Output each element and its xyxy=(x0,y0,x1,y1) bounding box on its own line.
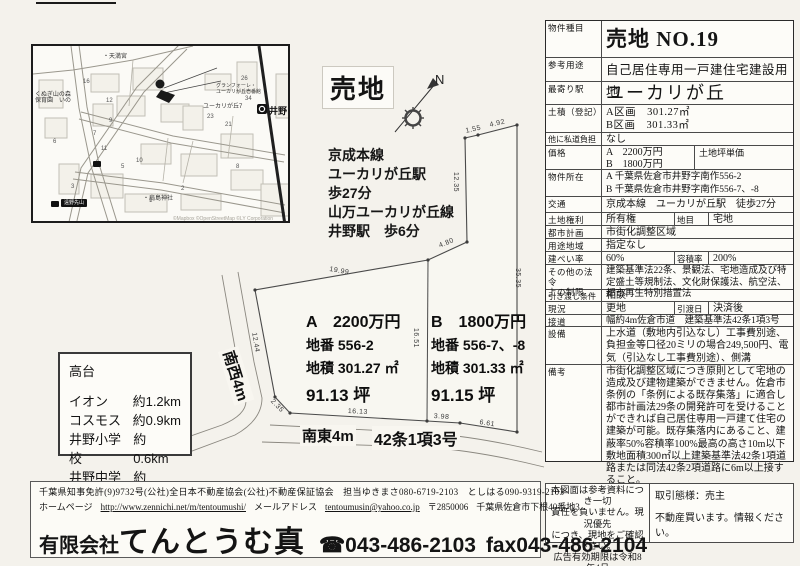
field-value: 更地 xyxy=(602,302,675,314)
map-label-shrine: ・扇島神社 xyxy=(143,196,173,202)
field-label: 交通 xyxy=(546,197,602,212)
field-label: 物件種目 xyxy=(546,21,602,57)
field-label: 地目 xyxy=(675,213,709,225)
field-value: 相談 xyxy=(602,290,793,301)
field-value: 建築基準法22条、景観法、宅地造成及び特定盛土等規制法、文化財保護法、航空法、都… xyxy=(602,265,793,289)
field-value: A 千葉県佐倉市井野字南作556-2 B 千葉県佐倉市井野字南作556-7、-8 xyxy=(602,170,793,196)
field-label: 設備 xyxy=(546,327,602,364)
field-label: 他に私道負担 xyxy=(546,133,602,145)
table-row: 設備 上水道（敷地内引込なし）工事費別途、負担金等口径20ミリの場合249,50… xyxy=(546,326,793,364)
map-label-granforet: グランフォーレ・ ユーカリが丘壱番館 xyxy=(216,84,261,95)
field-label: 価格 xyxy=(546,146,602,169)
map-label-tenmangu: ・天満宮 xyxy=(103,54,127,60)
table-row: 引き渡し条件 相談 xyxy=(546,289,793,301)
table-row: 最寄り駅 ユーカリが丘 xyxy=(546,81,793,104)
field-label: 備考 xyxy=(546,365,602,461)
table-row: 他に私道負担 なし xyxy=(546,132,793,145)
road-article-label: 42条1項3号 xyxy=(372,426,460,450)
map-block-number: 9 xyxy=(109,118,112,124)
map-block-number: 10 xyxy=(136,158,143,164)
field-label: 最寄り駅 xyxy=(546,82,602,104)
field-value: 指定なし xyxy=(602,239,793,251)
company-prefix: 有限会社 xyxy=(39,529,119,558)
table-row: 物件所在 A 千葉県佐倉市井野字南作556-2 B 千葉県佐倉市井野字南作556… xyxy=(546,169,793,196)
landmark-item: 井野小学校 約0.6km xyxy=(69,430,181,468)
office-address: 千葉県佐倉市下根40番地3 xyxy=(476,502,580,512)
parcel-b-info: B 1800万円 地番 556-7、-8 地積 301.33 ㎡ 91.15 坪 xyxy=(431,308,526,406)
dimension-label: 35.35 xyxy=(514,268,521,288)
company-name: てんとうむ真 xyxy=(119,517,305,561)
transaction-type: 取引態様：売主 xyxy=(655,487,788,502)
parcel-a-area: 地積 301.27 ㎡ xyxy=(306,358,401,378)
bus-stop-label: 遠野先山 xyxy=(61,199,87,207)
homepage-url: http://www.zennichi.net/m/tentoumushi/ xyxy=(101,502,246,512)
transaction-info: 取引態様：売主 不動産買います。情報ください。 xyxy=(650,484,793,542)
field-value: 上水道（敷地内引込なし）工事費別途、負担金等口径20ミリの場合249,500円、… xyxy=(602,327,793,364)
company-box: 千葉県知事免許(9)9732号(公社)全日本不動産協会(公社)不動産保証協会 担… xyxy=(30,481,541,558)
field-value: A区画 301.27㎡ B区画 301.33㎡ xyxy=(602,105,793,132)
landmark-box: 高台 イオン 約1.2km コスモス 約0.9km 井野小学校 約0.6km 井… xyxy=(58,352,192,456)
map-block-number: 1 xyxy=(149,198,152,204)
field-label: 容積率 xyxy=(675,252,709,264)
landmark-distance: 約0.6km xyxy=(133,430,181,468)
road-label-southeast: 南東4m xyxy=(300,425,356,446)
field-label: 参考用途 xyxy=(546,58,602,81)
table-row: 物件種目 売地 NO.19 xyxy=(546,21,793,57)
field-label: 引渡日 xyxy=(675,302,709,314)
field-value: 所有権 xyxy=(602,213,675,225)
dimension-label: 16.51 xyxy=(412,328,419,348)
table-row: 土積（登記） A区画 301.27㎡ B区画 301.33㎡ xyxy=(546,104,793,132)
field-label: 都市計画 xyxy=(546,226,602,238)
table-row: 建ぺい率 60% 容積率 200% xyxy=(546,251,793,264)
bus-icon xyxy=(93,161,101,167)
plot-diagram xyxy=(180,95,560,480)
map-block-number: 7 xyxy=(93,131,96,137)
field-label: 物件所在 xyxy=(546,170,602,196)
field-value: 宅地 xyxy=(709,213,793,225)
scan-artifact xyxy=(36,2,116,4)
map-block-number: 11 xyxy=(101,146,107,152)
map-block-number: 12 xyxy=(106,98,113,104)
field-value: 市街化調整区域 xyxy=(602,226,793,238)
phone-number: ☎043-486-2103 xyxy=(319,533,476,558)
table-row: 交通 京成本線 ユーカリが丘駅 徒歩27分 xyxy=(546,196,793,212)
company-name-line: 有限会社 てんとうむ真 ☎043-486-2103 fax043-486-210… xyxy=(39,517,532,561)
parcel-b-tsubo: 91.15 坪 xyxy=(431,381,526,406)
landmark-item: コスモス 約0.9km xyxy=(69,411,181,430)
landmark-title: 高台 xyxy=(69,361,181,380)
dimension-label: 3.98 xyxy=(434,413,450,421)
buying-notice: 不動産買います。情報ください。 xyxy=(655,509,788,539)
homepage-label: ホームページ xyxy=(39,502,93,512)
table-row: 土地権利 所有権 地目 宅地 xyxy=(546,212,793,225)
field-value: 売地 NO.19 xyxy=(602,21,793,57)
parcel-a-tsubo: 91.13 坪 xyxy=(306,381,401,406)
field-label: 土地権利 xyxy=(546,213,602,225)
field-label: 土積（登記） xyxy=(546,105,602,132)
field-label: 土地坪単価 xyxy=(695,146,793,169)
field-value: ユーカリが丘 xyxy=(602,82,793,104)
table-row: 接道 幅約4m佐倉市道 建築基準法42条1項3号 xyxy=(546,314,793,326)
map-block-number: 3 xyxy=(71,184,74,190)
map-label-nursery: くぬぎ山の森 保育園 いの xyxy=(35,92,71,104)
parcel-b-lot: 地番 556-7、-8 xyxy=(431,335,526,355)
field-label: 用途地域 xyxy=(546,239,602,251)
landmark-item: イオン 約1.2km xyxy=(69,392,181,411)
field-value: 幅約4m佐倉市道 建築基準法42条1項3号 xyxy=(602,315,793,326)
field-label: 引き渡し条件 xyxy=(546,290,602,301)
field-value: A 2200万円 B 1800万円 xyxy=(602,146,695,169)
flyer-page: ・天満宮 くぬぎ山の森 保育園 いの グランフォーレ・ ユーカリが丘壱番館 ユー… xyxy=(0,0,800,566)
field-value: 市街化調整区域につき原則として宅地の造成及び建物建築ができません。佐倉市条例の「… xyxy=(602,365,793,461)
field-label: 建ぺい率 xyxy=(546,252,602,264)
landmark-name: 井野小学校 xyxy=(69,430,133,468)
parcel-b-price: B 1800万円 xyxy=(431,308,526,332)
parcel-a-price: A 2200万円 xyxy=(306,308,401,332)
map-block-number: 16 xyxy=(83,79,90,85)
map-block-number: 26 xyxy=(241,76,248,82)
parcel-b-area: 地積 301.33 ㎡ xyxy=(431,358,526,378)
property-table: 物件種目 売地 NO.19 参考用途 自己居住専用一戸建住宅建設用地 最寄り駅 … xyxy=(545,20,794,462)
table-row: 用途地域 指定なし xyxy=(546,238,793,251)
field-value: なし xyxy=(602,133,793,145)
license-line: 千葉県知事免許(9)9732号(公社)全日本不動産協会(公社)不動産保証協会 担… xyxy=(39,485,532,498)
field-label: 現況 xyxy=(546,302,602,314)
contact-line: ホームページhttp://www.zennichi.net/m/tentoumu… xyxy=(39,500,532,513)
landmark-distance: 約1.2km xyxy=(133,392,181,411)
parcel-a-info: A 2200万円 地番 556-2 地積 301.27 ㎡ 91.13 坪 xyxy=(306,308,401,406)
table-row: 価格 A 2200万円 B 1800万円 土地坪単価 xyxy=(546,145,793,169)
postal-code: 〒2850006 xyxy=(428,502,469,512)
field-value: 京成本線 ユーカリが丘駅 徒歩27分 xyxy=(602,197,793,212)
map-block-number: 6 xyxy=(53,139,56,145)
field-value: 決済後 xyxy=(709,302,793,314)
mail-label: メールアドレス xyxy=(254,502,317,512)
compass-n-label: N xyxy=(435,72,444,87)
table-row: 参考用途 自己居住専用一戸建住宅建設用地 xyxy=(546,57,793,81)
field-value: 60% xyxy=(602,252,675,264)
field-label: 接道 xyxy=(546,315,602,326)
table-row: 現況 更地 引渡日 決済後 xyxy=(546,301,793,314)
table-row: 備考 市街化調整区域につき原則として宅地の造成及び建物建築ができません。佐倉市条… xyxy=(546,364,793,461)
landmark-name: コスモス xyxy=(69,411,121,430)
table-row: その他の法令 上の制限 建築基準法22条、景観法、宅地造成及び特定盛土等規制法、… xyxy=(546,264,793,289)
landmark-distance: 約0.9km xyxy=(133,411,181,430)
dimension-label: 16.13 xyxy=(348,408,368,416)
dimension-label: 12.35 xyxy=(452,172,459,192)
bus-icon xyxy=(51,201,59,207)
field-value: 200% xyxy=(709,252,793,264)
map-block-number: 5 xyxy=(121,164,124,170)
field-label: その他の法令 上の制限 xyxy=(546,265,602,289)
mail-address: tentoumusin@yahoo.co.jp xyxy=(325,502,420,512)
parcel-a-lot: 地番 556-2 xyxy=(306,335,401,355)
field-value: 自己居住専用一戸建住宅建設用地 xyxy=(602,58,793,81)
landmark-name: イオン xyxy=(69,392,108,411)
fax-number: fax043-486-2104 xyxy=(486,534,647,558)
table-row: 都市計画 市街化調整区域 xyxy=(546,225,793,238)
